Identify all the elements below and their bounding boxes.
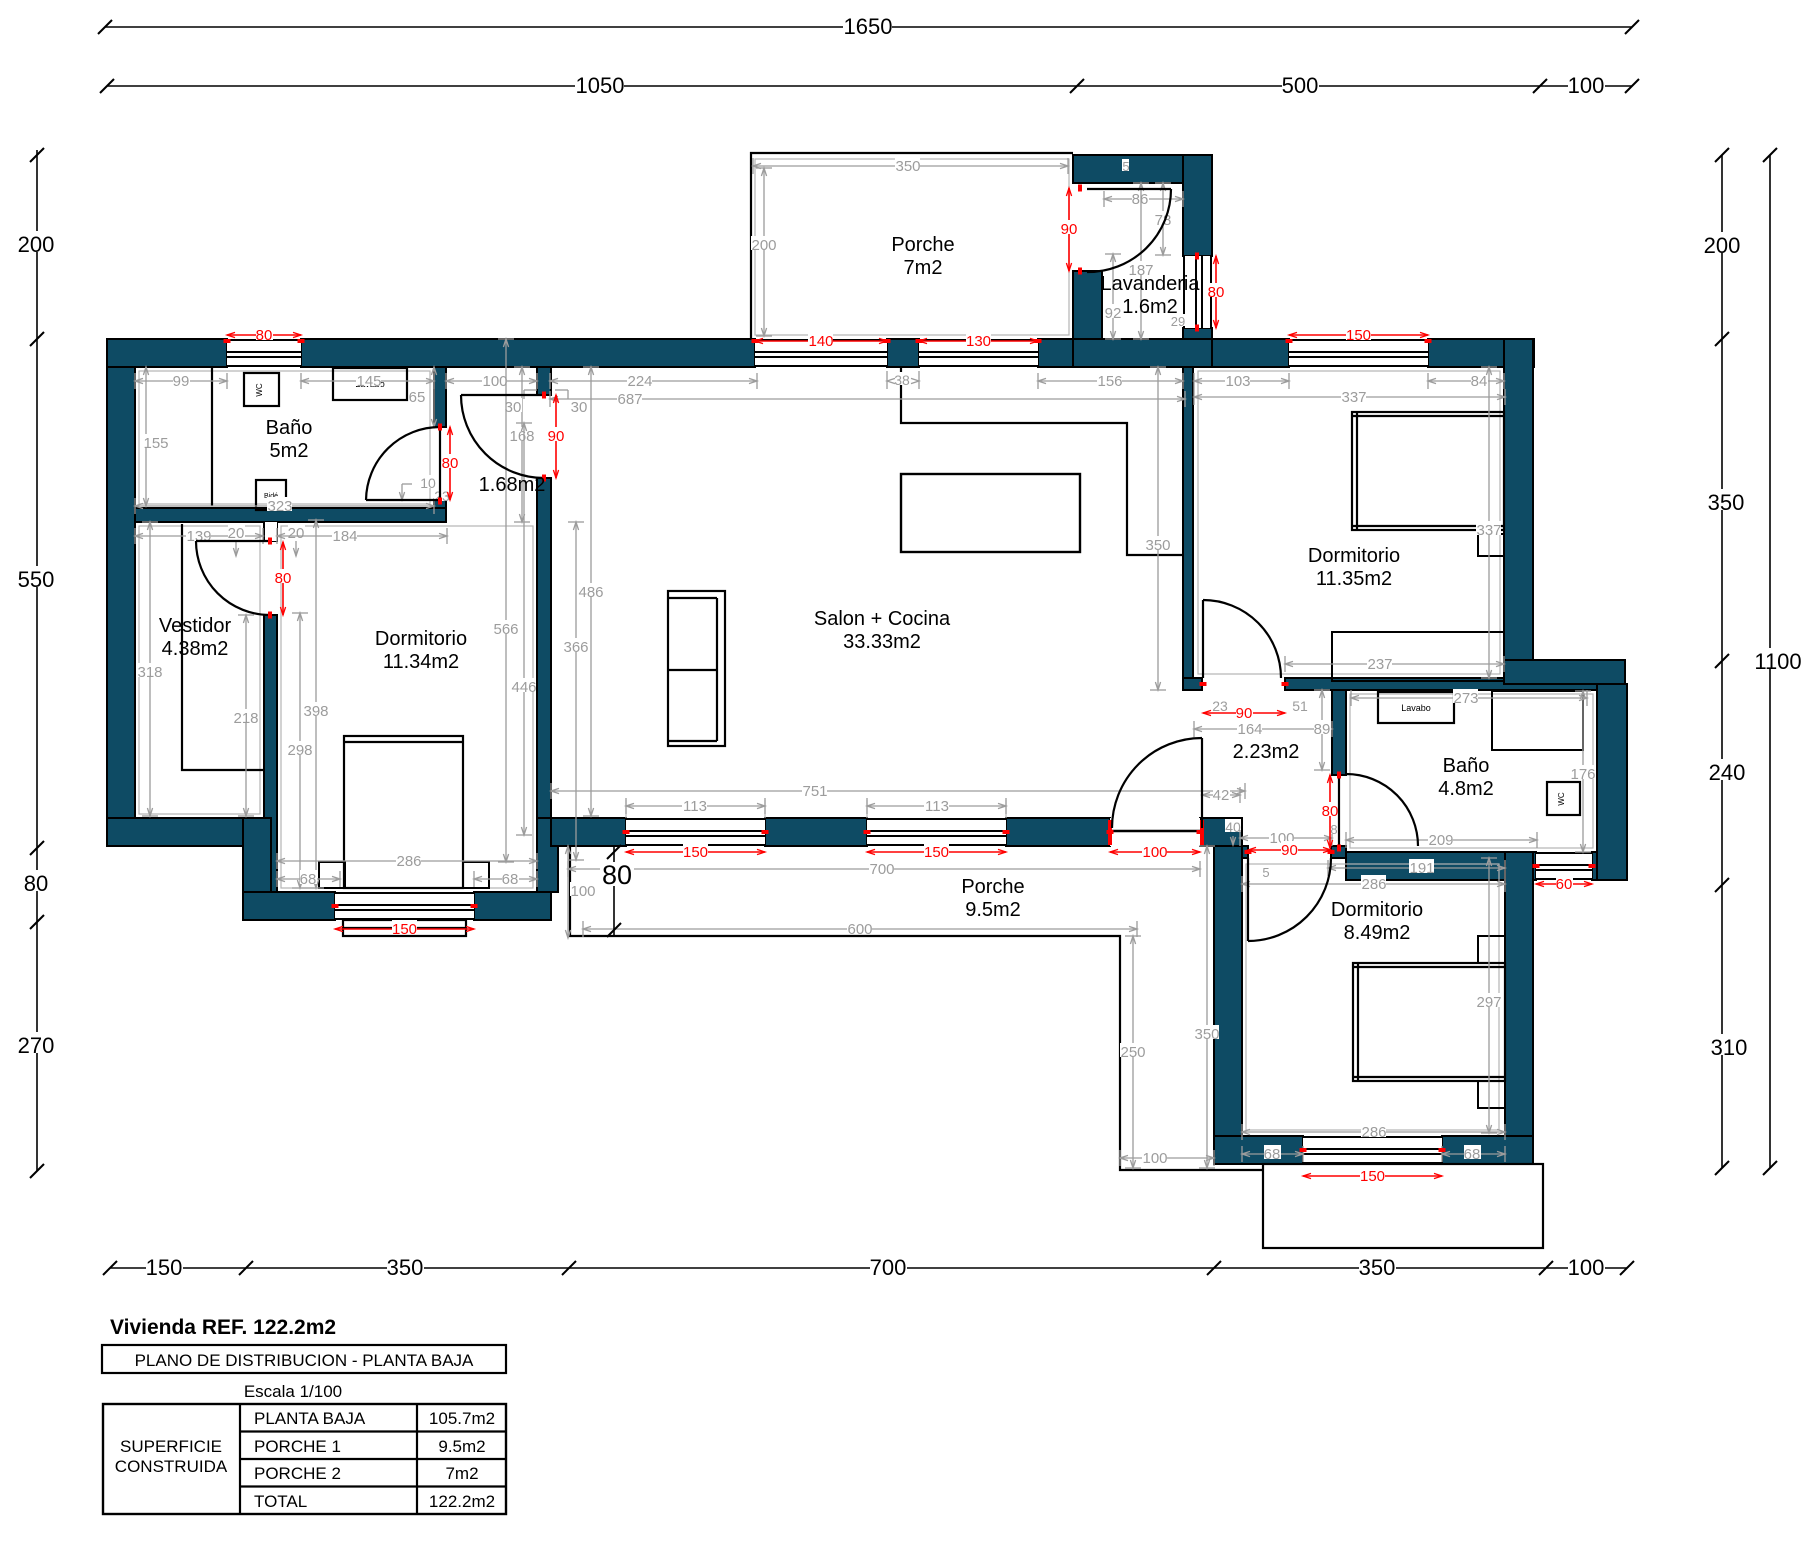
svg-text:398: 398 — [303, 703, 328, 720]
svg-text:68: 68 — [1264, 1146, 1281, 1163]
svg-text:113: 113 — [683, 798, 707, 815]
svg-text:751: 751 — [802, 783, 827, 800]
svg-text:184: 184 — [332, 528, 357, 545]
svg-text:SUPERFICIE: SUPERFICIE — [120, 1437, 222, 1456]
svg-text:224: 224 — [627, 373, 652, 390]
svg-text:150: 150 — [1360, 1168, 1385, 1185]
svg-text:1.6m2: 1.6m2 — [1122, 296, 1178, 318]
svg-text:318: 318 — [137, 664, 162, 681]
svg-text:WC: WC — [255, 383, 264, 397]
svg-text:297: 297 — [1476, 994, 1501, 1011]
svg-text:103: 103 — [1225, 373, 1250, 390]
svg-text:5: 5 — [1262, 865, 1269, 880]
svg-text:86: 86 — [1132, 191, 1149, 208]
svg-text:68: 68 — [300, 871, 317, 888]
svg-text:Dormitorio: Dormitorio — [1308, 545, 1400, 567]
svg-text:2.23m2: 2.23m2 — [1233, 741, 1300, 763]
svg-text:Vestidor: Vestidor — [159, 615, 232, 637]
svg-text:20: 20 — [228, 525, 245, 542]
svg-text:286: 286 — [396, 853, 421, 870]
svg-text:100: 100 — [1568, 1255, 1605, 1280]
svg-text:139: 139 — [186, 528, 211, 545]
svg-text:30: 30 — [571, 399, 588, 416]
svg-text:90: 90 — [1061, 221, 1078, 238]
svg-text:350: 350 — [1708, 490, 1745, 515]
svg-text:60: 60 — [1556, 876, 1573, 893]
svg-text:51: 51 — [1292, 698, 1308, 714]
svg-text:Salon + Cocina: Salon + Cocina — [814, 608, 951, 630]
svg-text:68: 68 — [502, 871, 519, 888]
svg-text:30: 30 — [505, 399, 522, 416]
svg-text:80: 80 — [24, 871, 48, 896]
svg-text:PORCHE 2: PORCHE 2 — [254, 1464, 341, 1483]
svg-text:600: 600 — [847, 921, 872, 938]
svg-text:687: 687 — [617, 391, 642, 408]
svg-text:150: 150 — [146, 1255, 183, 1280]
svg-text:80: 80 — [442, 455, 459, 472]
svg-text:105.7m2: 105.7m2 — [429, 1409, 495, 1428]
svg-text:337: 337 — [1476, 522, 1501, 539]
svg-text:100: 100 — [482, 373, 507, 390]
svg-text:700: 700 — [870, 1255, 907, 1280]
svg-text:122.2m2: 122.2m2 — [429, 1492, 495, 1511]
svg-text:1650: 1650 — [844, 14, 893, 39]
svg-text:700: 700 — [869, 861, 894, 878]
svg-text:68: 68 — [1464, 1146, 1481, 1163]
svg-text:PLANTA BAJA: PLANTA BAJA — [254, 1409, 366, 1428]
svg-text:350: 350 — [1359, 1255, 1396, 1280]
svg-text:Baño: Baño — [1443, 755, 1490, 777]
svg-text:200: 200 — [18, 232, 55, 257]
svg-text:140: 140 — [808, 333, 833, 350]
svg-text:113: 113 — [925, 798, 949, 815]
svg-text:Lavanderia: Lavanderia — [1101, 273, 1201, 295]
svg-text:100: 100 — [1142, 1150, 1167, 1167]
svg-text:WC: WC — [1557, 792, 1566, 806]
svg-text:84: 84 — [1471, 373, 1488, 390]
svg-text:23: 23 — [434, 488, 450, 504]
svg-text:366: 366 — [563, 639, 588, 656]
svg-text:33.33m2: 33.33m2 — [843, 631, 921, 653]
svg-text:286: 286 — [1361, 876, 1386, 893]
svg-text:80: 80 — [275, 570, 292, 587]
svg-text:Dormitorio: Dormitorio — [1331, 899, 1423, 921]
svg-text:90: 90 — [1236, 705, 1253, 722]
svg-text:65: 65 — [409, 389, 426, 406]
svg-text:250: 250 — [1120, 1044, 1145, 1061]
svg-text:176: 176 — [1570, 766, 1595, 783]
svg-text:90: 90 — [548, 428, 565, 445]
svg-text:5m2: 5m2 — [270, 440, 309, 462]
svg-text:PORCHE 1: PORCHE 1 — [254, 1437, 341, 1456]
svg-text:80: 80 — [1322, 803, 1339, 820]
svg-text:350: 350 — [895, 158, 920, 175]
svg-text:Dormitorio: Dormitorio — [375, 628, 467, 650]
svg-text:150: 150 — [924, 844, 949, 861]
svg-text:350: 350 — [1145, 537, 1170, 554]
svg-text:20: 20 — [288, 525, 305, 542]
svg-text:23: 23 — [1212, 698, 1228, 714]
svg-text:8.49m2: 8.49m2 — [1344, 922, 1411, 944]
svg-text:9.5m2: 9.5m2 — [438, 1437, 485, 1456]
svg-text:90: 90 — [1281, 842, 1298, 859]
svg-text:100: 100 — [1568, 73, 1605, 98]
svg-text:99: 99 — [173, 373, 190, 390]
svg-text:80: 80 — [1208, 284, 1225, 301]
svg-text:1.68m2: 1.68m2 — [479, 474, 546, 496]
svg-text:337: 337 — [1341, 389, 1366, 406]
svg-text:Escala 1/100: Escala 1/100 — [244, 1382, 342, 1401]
svg-text:156: 156 — [1097, 373, 1122, 390]
svg-text:92: 92 — [1105, 305, 1122, 322]
svg-text:8: 8 — [1330, 822, 1337, 837]
svg-text:150: 150 — [1346, 327, 1371, 344]
svg-text:Porche: Porche — [891, 234, 954, 256]
svg-text:Baño: Baño — [266, 417, 313, 439]
svg-text:298: 298 — [287, 742, 312, 759]
svg-text:130: 130 — [966, 333, 991, 350]
svg-text:191: 191 — [1409, 860, 1434, 877]
svg-text:209: 209 — [1428, 832, 1453, 849]
svg-text:7m2: 7m2 — [904, 257, 943, 279]
svg-text:Vivienda REF. 122.2m2: Vivienda REF. 122.2m2 — [110, 1316, 336, 1339]
svg-text:200: 200 — [1704, 233, 1741, 258]
svg-text:11.35m2: 11.35m2 — [1316, 568, 1392, 590]
svg-text:80: 80 — [602, 860, 632, 890]
svg-text:42: 42 — [1213, 787, 1230, 804]
svg-text:Porche: Porche — [961, 876, 1024, 898]
svg-text:550: 550 — [18, 567, 55, 592]
svg-text:270: 270 — [18, 1033, 55, 1058]
svg-text:PLANO DE DISTRIBUCION - PLANTA: PLANO DE DISTRIBUCION - PLANTA BAJA — [135, 1351, 474, 1370]
svg-text:1100: 1100 — [1754, 649, 1801, 674]
svg-text:40: 40 — [1225, 819, 1241, 835]
svg-text:11.34m2: 11.34m2 — [383, 651, 459, 673]
svg-text:218: 218 — [233, 710, 258, 727]
svg-text:446: 446 — [511, 679, 536, 696]
svg-text:38: 38 — [894, 372, 910, 388]
svg-text:155: 155 — [143, 435, 168, 452]
svg-text:TOTAL: TOTAL — [254, 1492, 307, 1511]
svg-text:273: 273 — [1453, 690, 1478, 707]
svg-text:500: 500 — [1282, 73, 1319, 98]
svg-text:100: 100 — [570, 883, 595, 900]
svg-text:350: 350 — [1194, 1026, 1219, 1043]
svg-text:310: 310 — [1711, 1035, 1748, 1060]
svg-text:CONSTRUIDA: CONSTRUIDA — [115, 1457, 228, 1476]
svg-text:286: 286 — [1361, 1124, 1386, 1141]
svg-text:80: 80 — [256, 327, 273, 344]
svg-text:150: 150 — [392, 921, 417, 938]
svg-text:5: 5 — [1122, 159, 1129, 174]
svg-text:150: 150 — [683, 844, 708, 861]
svg-text:323: 323 — [267, 498, 292, 515]
svg-text:200: 200 — [751, 237, 776, 254]
svg-text:4.38m2: 4.38m2 — [162, 638, 229, 660]
svg-text:145: 145 — [356, 373, 381, 390]
svg-text:164: 164 — [1237, 721, 1262, 738]
svg-text:Lavabo: Lavabo — [1401, 703, 1431, 713]
svg-text:237: 237 — [1367, 656, 1392, 673]
svg-text:89: 89 — [1314, 721, 1331, 738]
svg-text:100: 100 — [1142, 844, 1167, 861]
svg-text:1050: 1050 — [576, 73, 625, 98]
svg-text:4.8m2: 4.8m2 — [1438, 778, 1494, 800]
svg-text:9.5m2: 9.5m2 — [965, 899, 1021, 921]
svg-text:240: 240 — [1709, 760, 1746, 785]
svg-text:350: 350 — [387, 1255, 424, 1280]
svg-text:566: 566 — [493, 621, 518, 638]
svg-text:486: 486 — [578, 584, 603, 601]
svg-text:7m2: 7m2 — [445, 1464, 478, 1483]
